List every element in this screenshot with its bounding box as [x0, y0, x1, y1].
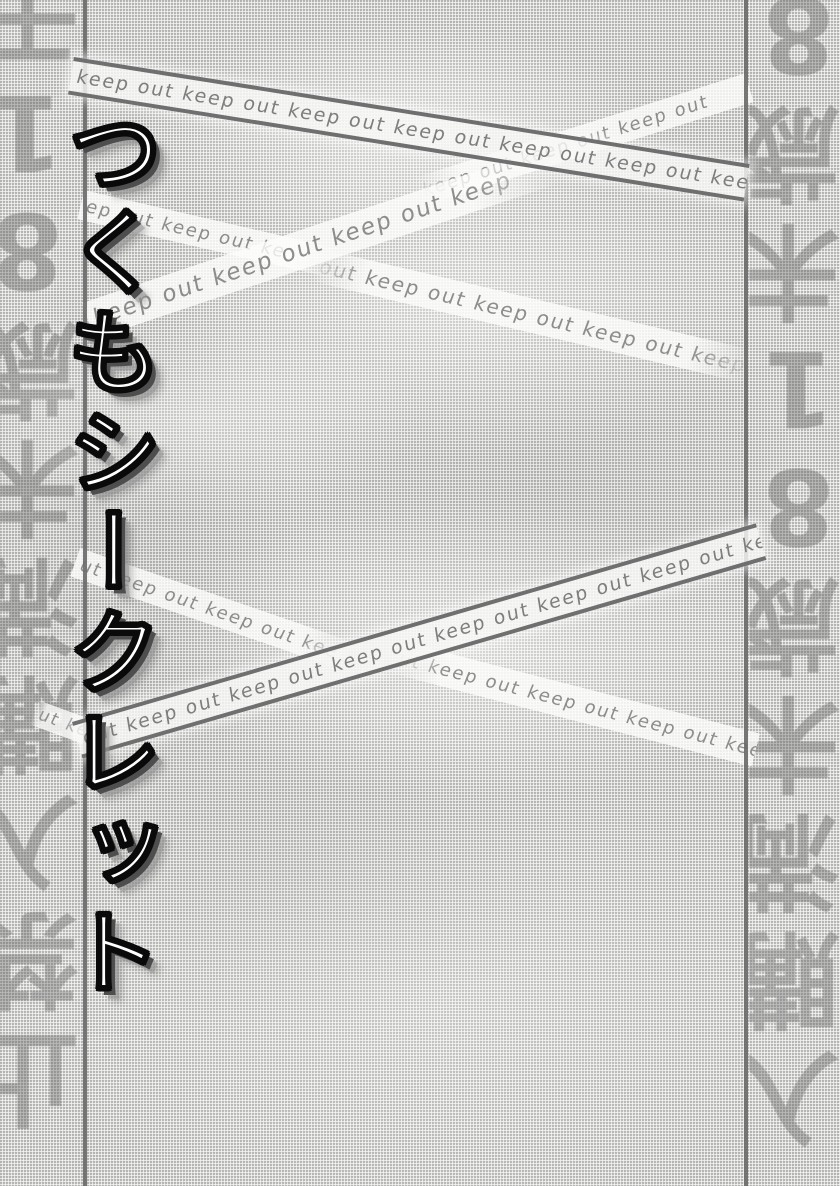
- keep-out-text: ut keep out keep out keep out keep out k…: [390, 647, 760, 767]
- keep-out-text: out keep out keep out keep out keep out …: [310, 253, 754, 383]
- keep-out-tape-panel3-descending: ut keep out keep out keep out keep out k…: [389, 640, 760, 767]
- left-margin-watermark: 干18歳未満購入禁止: [0, 0, 84, 1186]
- keep-out-text: ut keep out keep out kee: [70, 553, 343, 663]
- keep-out-tape-panel2-descending-right: out keep out keep out keep out keep out …: [310, 248, 754, 383]
- doujinshi-censored-page: 干18歳未満購入禁止 8歳未18歳未満購入 keep out keep out …: [0, 0, 840, 1186]
- right-margin-watermark: 8歳未18歳未満購入: [749, 0, 840, 1186]
- panel-border-left: [83, 0, 87, 1186]
